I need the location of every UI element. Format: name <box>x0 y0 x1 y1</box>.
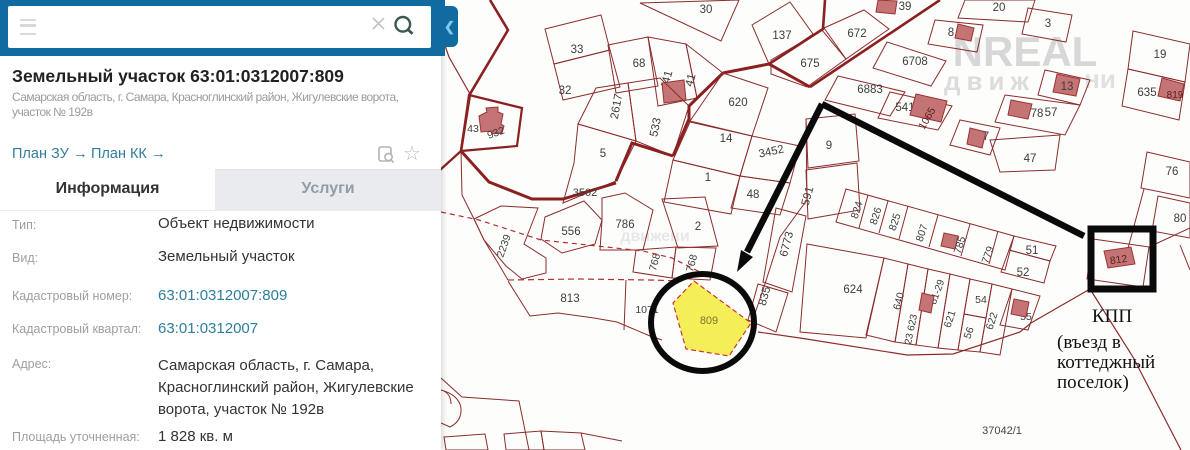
svg-text:8: 8 <box>948 27 954 39</box>
svg-text:6708: 6708 <box>902 56 928 68</box>
svg-text:20: 20 <box>993 2 1006 14</box>
svg-text:5: 5 <box>600 148 606 160</box>
svg-text:поселок): поселок) <box>1057 372 1129 393</box>
svg-text:556: 556 <box>561 226 580 238</box>
svg-text:813: 813 <box>560 293 579 305</box>
svg-text:47: 47 <box>1024 153 1037 165</box>
svg-text:675: 675 <box>800 58 819 70</box>
svg-text:76: 76 <box>1166 166 1179 178</box>
svg-text:80: 80 <box>1174 213 1187 225</box>
svg-text:1: 1 <box>705 172 711 184</box>
svg-text:672: 672 <box>847 28 866 40</box>
svg-text:ни: ни <box>1084 64 1116 94</box>
svg-text:6883: 6883 <box>857 84 883 96</box>
svg-text:3: 3 <box>1045 18 1051 30</box>
svg-text:57: 57 <box>1045 107 1058 119</box>
svg-text:9: 9 <box>826 140 832 152</box>
svg-text:коттеджный: коттеджный <box>1057 352 1155 373</box>
svg-text:32: 32 <box>559 85 572 97</box>
svg-text:137: 137 <box>772 30 791 42</box>
svg-text:620: 620 <box>728 97 747 109</box>
svg-text:819: 819 <box>1167 90 1184 101</box>
svg-text:13: 13 <box>1061 81 1074 93</box>
svg-text:54: 54 <box>975 294 987 306</box>
svg-text:78: 78 <box>1031 108 1044 120</box>
svg-text:624: 624 <box>843 284 863 296</box>
svg-text:КПП: КПП <box>1092 306 1132 327</box>
svg-text:движ: движ <box>944 66 1035 96</box>
svg-text:812: 812 <box>1109 253 1128 267</box>
svg-text:19: 19 <box>1154 49 1167 61</box>
svg-text:39: 39 <box>899 1 912 13</box>
svg-text:809: 809 <box>700 315 718 327</box>
svg-text:30: 30 <box>700 4 713 16</box>
svg-text:2: 2 <box>695 221 701 233</box>
svg-text:68: 68 <box>633 58 646 70</box>
svg-text:48: 48 <box>747 189 760 201</box>
svg-text:3502: 3502 <box>573 187 597 199</box>
svg-text:14: 14 <box>720 133 733 145</box>
svg-text:(въезд в: (въезд в <box>1057 332 1121 353</box>
svg-text:7: 7 <box>983 131 989 143</box>
svg-text:37042/1: 37042/1 <box>982 425 1022 437</box>
svg-text:43: 43 <box>467 123 479 135</box>
svg-text:52: 52 <box>1017 267 1030 279</box>
svg-text:635: 635 <box>1137 87 1156 99</box>
svg-text:786: 786 <box>615 219 634 231</box>
svg-text:33: 33 <box>571 44 584 56</box>
